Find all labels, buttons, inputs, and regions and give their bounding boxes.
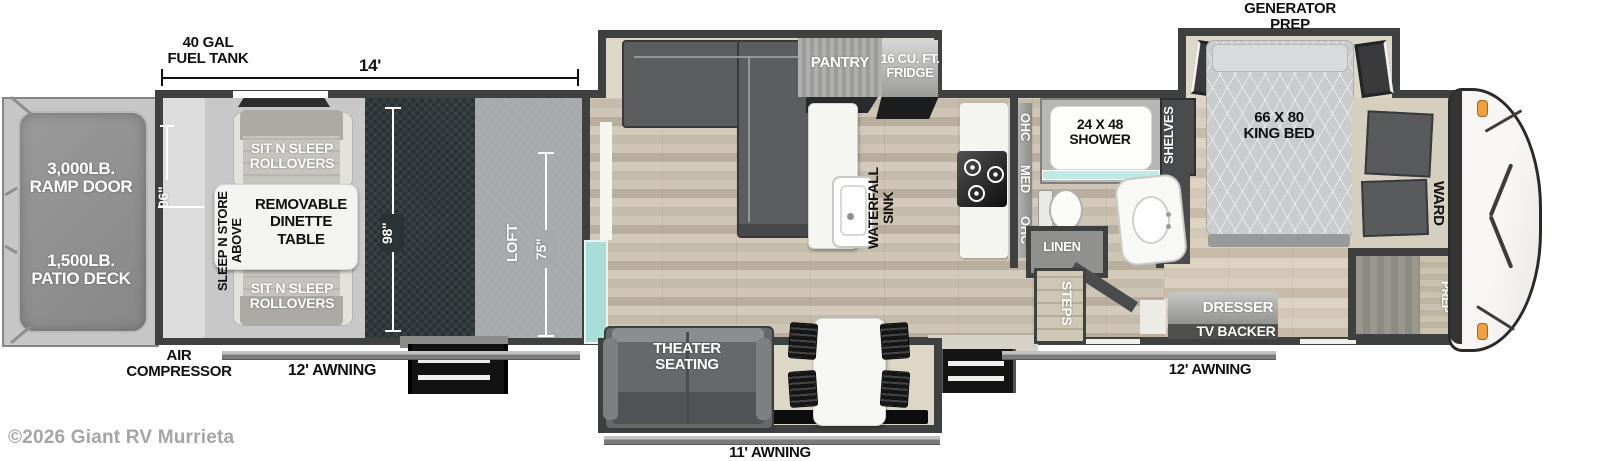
dim-98-tick [385, 107, 401, 109]
fuel-tank-label: 40 GAL FUEL TANK [155, 35, 261, 67]
toilet-icon [1049, 189, 1083, 231]
tv-backer-label: TV BACKER [1194, 324, 1278, 339]
dim-14-tick-left [161, 69, 163, 86]
sofa-seat-line [748, 56, 750, 222]
wardrobe-door [1364, 110, 1433, 177]
rv-floorplan-diagram: 3,000LB. RAMP DOOR 1,500LB. PATIO DECK 4… [0, 0, 1600, 461]
ramp-patio-panel [18, 111, 148, 333]
ward-label: WARD [1426, 176, 1446, 230]
washer-dryer-floor [1356, 256, 1420, 334]
dining-chair [880, 370, 910, 408]
patio-deck-label: 1,500LB. PATIO DECK [22, 252, 140, 289]
burner-icon [964, 159, 981, 176]
king-bed-label: 66 X 80 KING BED [1234, 110, 1324, 142]
faucet-icon [847, 213, 854, 220]
dim-75-tick [538, 152, 554, 154]
sit-n-sleep-top-label: SIT N SLEEP ROLLOVERS [236, 141, 348, 171]
bed-foot-bench [1208, 234, 1350, 247]
theater-armrest [603, 338, 618, 420]
right-awning-bar [1002, 351, 1276, 360]
dim-98-label: 98" [380, 214, 404, 252]
dim-96-extent-line [158, 206, 204, 208]
sit-n-sleep-bottom-label: SIT N SLEEP ROLLOVERS [236, 281, 348, 311]
faucet-icon [1166, 224, 1171, 229]
watermark: ©2026 Giant RV Murrieta [8, 428, 268, 449]
linen-label: LINEN [1026, 240, 1098, 254]
air-compressor-label: AIR COMPRESSOR [104, 348, 254, 380]
dim-14-label: 14' [348, 57, 392, 75]
front-cap-band [1450, 90, 1462, 344]
dim-96-line [166, 126, 168, 180]
theater-armrest [756, 338, 771, 420]
dining-chair [880, 322, 910, 360]
removable-dinette-label: REMOVABLE DINETTE TABLE [250, 196, 352, 248]
bed-pillows [1212, 44, 1348, 72]
vanity-basin [1132, 196, 1170, 244]
dim-96-tick [160, 125, 174, 127]
garage-window [238, 98, 330, 107]
dim-14-tick-right [577, 69, 579, 86]
waterfall-sink-label: WATERFALL SINK [866, 162, 904, 254]
step-tread [948, 376, 1004, 381]
dim-96-label: 96" [156, 180, 178, 214]
threshold-mark [1078, 339, 1140, 344]
wardrobe-door [1361, 179, 1429, 237]
right-awning-label: 12' AWNING [1158, 362, 1262, 378]
dim-75-tick [538, 335, 554, 337]
theater-seating-label: THEATER SEATING [624, 341, 750, 373]
burner-icon [987, 166, 1004, 183]
tv-pad [1140, 300, 1166, 334]
bath-left-wall [1010, 98, 1018, 268]
generator-prep-label: GENERATOR PREP [1235, 1, 1345, 33]
dim-98-tick [385, 330, 401, 332]
fridge-label: 16 CU. FT. FRIDGE [878, 52, 942, 80]
shower-label: 24 X 48 SHOWER [1058, 117, 1142, 147]
burner-icon [968, 185, 985, 202]
ramp-door-label: 3,000LB. RAMP DOOR [22, 160, 140, 197]
dresser-label: DRESSER [1198, 300, 1278, 316]
dim-14-line [162, 77, 578, 79]
sleep-n-store-label: SLEEP N STORE ABOVE [216, 178, 250, 304]
sofa-side-table [600, 122, 612, 240]
faucet-icon [1166, 212, 1171, 217]
step-tread [948, 361, 1004, 366]
steps-label: STEPS [1040, 272, 1074, 334]
marker-light-icon [1477, 100, 1488, 117]
left-awning-bar [222, 351, 580, 360]
garage-window-frame [233, 91, 328, 98]
dim-75-label: 75" [534, 230, 558, 268]
sink-basin [840, 185, 867, 236]
dining-chair [788, 370, 818, 408]
dining-chair [788, 322, 818, 360]
loft-label: LOFT [505, 216, 529, 270]
sofa-foot-block [739, 224, 810, 236]
center-awning-label: 11' AWNING [700, 445, 840, 461]
pantry-label: PANTRY [800, 55, 880, 71]
dining-table [813, 318, 886, 426]
sofa-seat-line [634, 56, 798, 58]
garage-floor-left [163, 98, 205, 338]
shelves-label: SHELVES [1162, 102, 1192, 168]
left-awning-label: 12' AWNING [262, 362, 402, 379]
marker-light-icon [1477, 323, 1488, 340]
step-tread [418, 375, 490, 380]
